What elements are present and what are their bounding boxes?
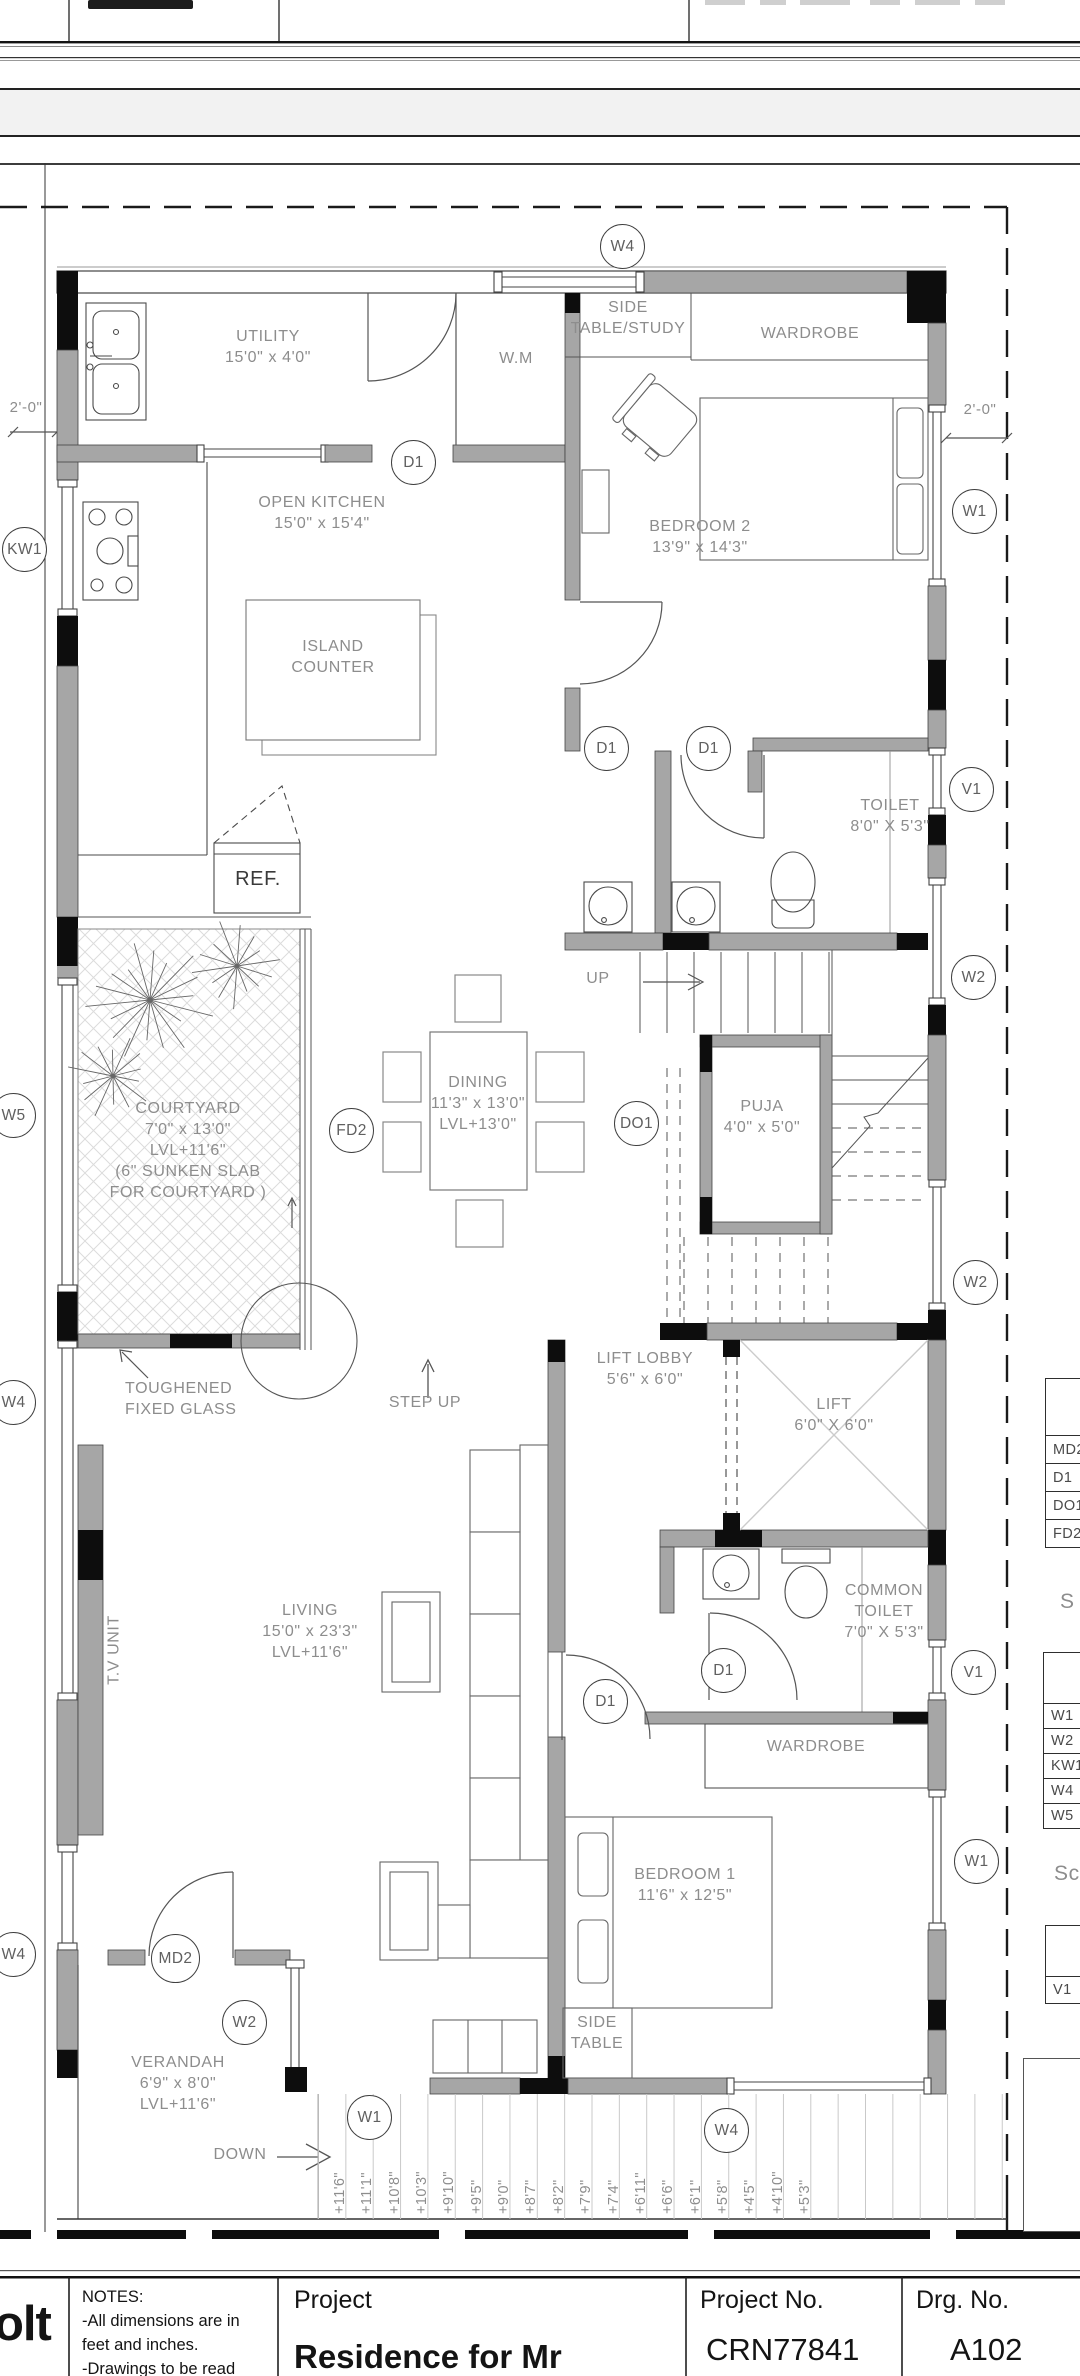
window-schedule-row: W5 (1044, 1803, 1080, 1828)
step-level-label: +7'4" (606, 2179, 622, 2214)
marker-w2: W2 (951, 955, 996, 1000)
marker-w4: W4 (704, 2108, 749, 2153)
area-statement-box (1023, 2058, 1080, 2232)
label-dining: DINING11'3" x 13'0"LVL+13'0" (431, 1072, 525, 1135)
living-furniture (380, 1445, 548, 2073)
project-name: Residence for Mr (294, 2338, 562, 2376)
dim-right: 2'-0" (964, 400, 997, 420)
step-level-label: +11'6" (332, 2172, 348, 2214)
label-side-table-study: SIDETABLE/STUDY (571, 297, 686, 339)
marker-w1: W1 (347, 2095, 392, 2140)
label-tv-unit: T.V UNIT (103, 1615, 124, 1685)
step-level-label: +9'5" (469, 2179, 485, 2214)
label-lift: LIFT6'0" X 6'0" (794, 1394, 873, 1436)
label-wardrobe-top: WARDROBE (761, 323, 859, 344)
label-utility: UTILITY15'0" x 4'0" (225, 326, 311, 368)
dim-left: 2'-0" (10, 398, 43, 418)
label-puja: PUJA4'0" x 5'0" (724, 1096, 801, 1138)
drg-no-label: Drg. No. (916, 2286, 1009, 2315)
window-schedule-row: W1 (1044, 1703, 1080, 1728)
schedule-heading-2: Sc (1054, 1860, 1080, 1888)
schedule-heading-1: S (1060, 1588, 1075, 1616)
project-no-label: Project No. (700, 2286, 824, 2315)
label-down: DOWN (213, 2144, 266, 2165)
door-schedule-row: DO1 (1046, 1491, 1080, 1519)
level-arrows (277, 1360, 434, 2170)
company-logo: olt (0, 2296, 51, 2352)
marker-d1: D1 (686, 726, 731, 771)
label-toilet2: TOILET8'0" X 5'3" (850, 795, 929, 837)
label-courtyard: COURTYARD7'0" x 13'0"LVL+11'6"(6" SUNKEN… (110, 1098, 267, 1204)
label-living: LIVING15'0" x 23'3"LVL+11'6" (262, 1600, 358, 1663)
marker-d1: D1 (391, 440, 436, 485)
step-level-label: +9'10" (441, 2171, 457, 2214)
vent-schedule-row: V1 (1046, 1976, 1080, 2003)
label-wm: W.M (499, 348, 533, 369)
marker-w2: W2 (222, 2000, 267, 2045)
label-side-table: SIDETABLE (571, 2012, 624, 2054)
step-level-label: +11'1" (359, 2172, 375, 2214)
step-level-label: +9'0" (496, 2179, 512, 2214)
vent-schedule-header (1046, 1926, 1080, 1976)
marker-d1: D1 (584, 726, 629, 771)
project-no-value: CRN77841 (706, 2332, 859, 2368)
notes-line-3: -Drawings to be read (82, 2360, 235, 2376)
step-level-label: +6'6" (660, 2179, 676, 2214)
door-schedule-row: D1 (1046, 1463, 1080, 1491)
marker-fd2: FD2 (329, 1108, 374, 1153)
step-level-label: +10'8" (387, 2171, 403, 2214)
bathroom-fixtures (584, 852, 830, 1618)
marker-w4: W4 (600, 224, 645, 269)
label-step-up: STEP UP (389, 1392, 461, 1413)
step-level-label: +4'5" (742, 2179, 758, 2214)
step-level-label: +5'3" (797, 2179, 813, 2214)
marker-v1: V1 (949, 767, 994, 812)
door-schedule-header (1046, 1379, 1080, 1435)
step-level-label: +4'10" (770, 2171, 786, 2214)
label-common-toilet: COMMONTOILET7'0" X 5'3" (844, 1580, 923, 1643)
marker-v1: V1 (951, 1650, 996, 1695)
project-label: Project (294, 2286, 372, 2315)
bedroom2-furniture (582, 373, 928, 560)
step-level-label: +6'11" (633, 2172, 649, 2214)
step-level-label: +5'8" (715, 2179, 731, 2214)
label-wardrobe-br1: WARDROBE (767, 1736, 865, 1757)
window-schedule-header (1044, 1653, 1080, 1703)
notes-title: NOTES: (82, 2288, 143, 2307)
label-ref: REF. (235, 866, 281, 892)
step-level-label: +6'1" (688, 2179, 704, 2214)
marker-do1: DO1 (614, 1101, 659, 1146)
marker-md2: MD2 (151, 1934, 200, 1983)
marker-d1: D1 (701, 1648, 746, 1693)
label-verandah: VERANDAH6'9" x 8'0"LVL+11'6" (131, 2052, 225, 2115)
step-level-label: +8'7" (523, 2179, 539, 2214)
door-schedule-row: FD2 (1046, 1519, 1080, 1547)
step-level-label: +8'2" (551, 2179, 567, 2214)
label-lift-lobby: LIFT LOBBY5'6" x 6'0" (597, 1348, 693, 1390)
marker-w1: W1 (952, 489, 997, 534)
marker-d1: D1 (583, 1679, 628, 1724)
notes-line-1: -All dimensions are in (82, 2312, 240, 2331)
label-bedroom1: BEDROOM 111'6" x 12'5" (634, 1864, 735, 1906)
label-open-kitchen: OPEN KITCHEN15'0" x 15'4" (258, 492, 385, 534)
label-up: UP (586, 968, 609, 989)
vent-schedule-table: V1 (1045, 1925, 1080, 2004)
marker-w2: W2 (953, 1260, 998, 1305)
door-schedule-table: MD2D1DO1FD2 (1045, 1378, 1080, 1548)
floor-plan-sheet: UTILITY15'0" x 4'0"W.MSIDETABLE/STUDYWAR… (0, 0, 1080, 2376)
window-schedule-table: W1W2KW1W4W5 (1043, 1652, 1080, 1829)
kitchen-fixtures (78, 303, 436, 913)
window-schedule-row: W2 (1044, 1728, 1080, 1753)
window-schedule-row: KW1 (1044, 1753, 1080, 1778)
drg-no-value: A102 (950, 2332, 1022, 2368)
label-island-counter: ISLANDCOUNTER (291, 636, 374, 678)
marker-w1: W1 (954, 1839, 999, 1884)
previous-sheet-remnant (0, 0, 1080, 165)
label-toughened-glass: TOUGHENEDFIXED GLASS (125, 1378, 237, 1420)
label-bedroom2: BEDROOM 213'9" x 14'3" (649, 516, 750, 558)
step-level-label: +7'9" (578, 2179, 594, 2214)
step-level-label: +10'3" (414, 2171, 430, 2214)
door-schedule-row: MD2 (1046, 1435, 1080, 1463)
window-schedule-row: W4 (1044, 1778, 1080, 1803)
notes-line-2: feet and inches. (82, 2336, 199, 2355)
marker-kw1: KW1 (2, 527, 47, 572)
